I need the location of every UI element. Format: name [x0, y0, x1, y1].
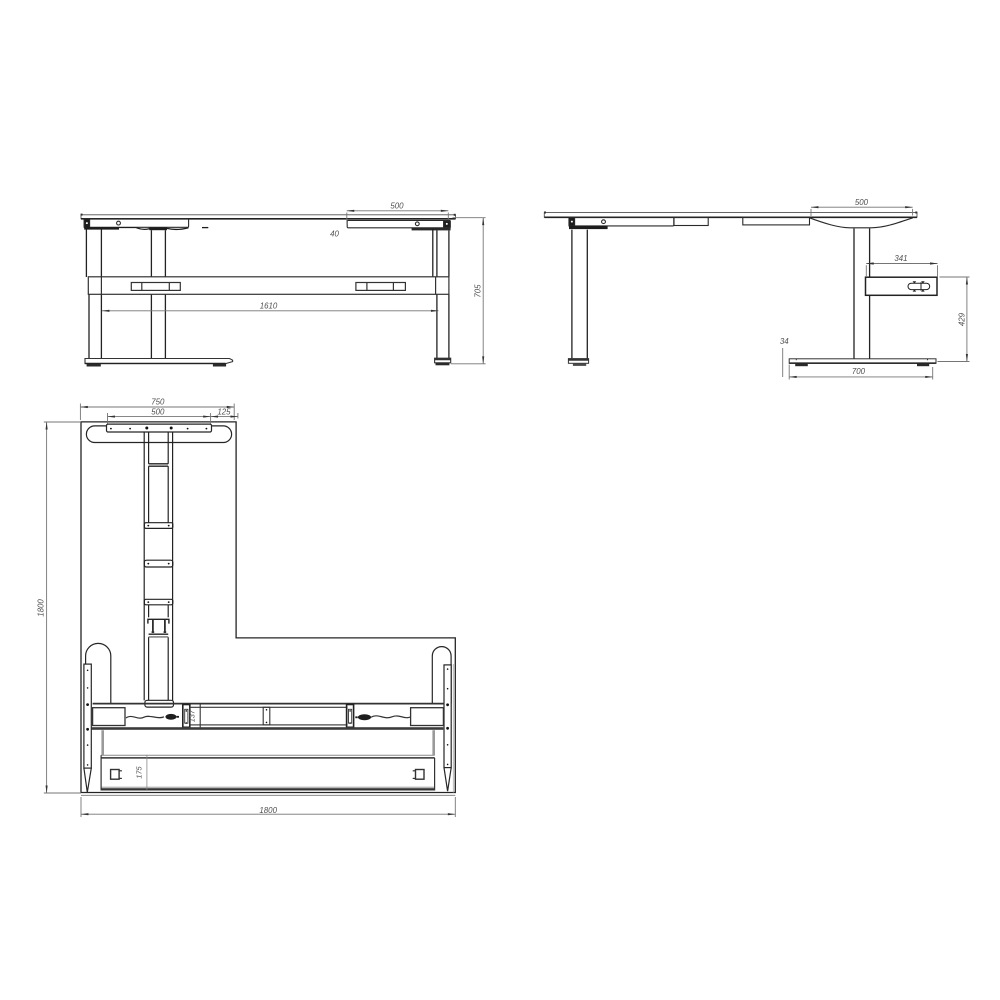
svg-text:1800: 1800	[259, 806, 277, 815]
svg-text:700: 700	[852, 367, 866, 376]
svg-text:500: 500	[390, 202, 404, 211]
svg-text:750: 750	[151, 398, 165, 407]
svg-text:341: 341	[894, 254, 907, 263]
svg-text:40: 40	[330, 230, 339, 239]
svg-text:500: 500	[855, 198, 869, 207]
svg-text:1800: 1800	[36, 599, 45, 617]
svg-text:1610: 1610	[260, 302, 278, 311]
svg-text:429: 429	[958, 312, 967, 326]
svg-text:500: 500	[151, 407, 165, 416]
svg-text:125: 125	[217, 407, 231, 416]
svg-text:137: 137	[188, 709, 197, 722]
svg-text:175: 175	[135, 765, 144, 778]
svg-text:705: 705	[474, 284, 483, 298]
svg-text:34: 34	[780, 337, 789, 346]
